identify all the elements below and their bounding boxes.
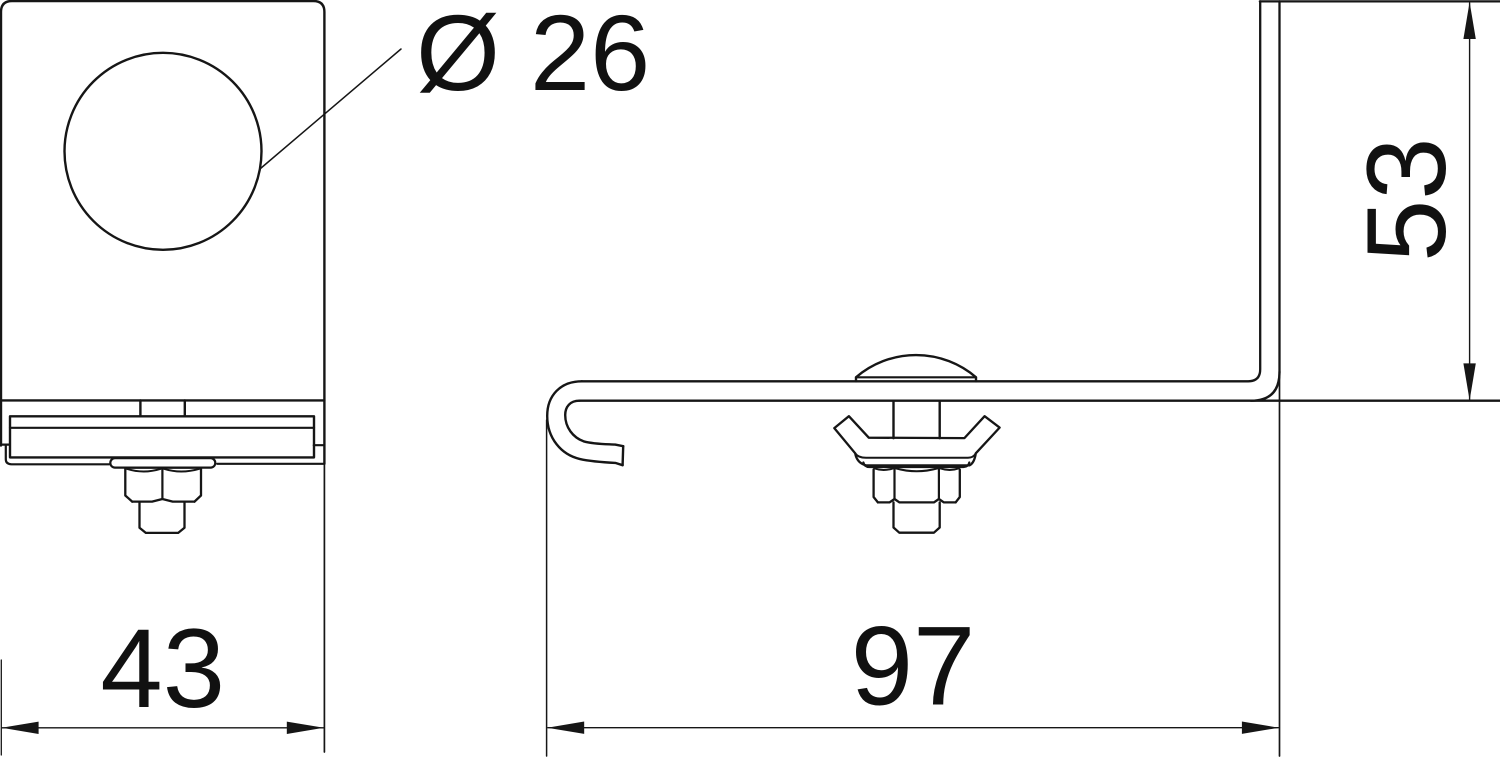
- svg-text:53: 53: [1344, 137, 1469, 262]
- svg-text:43: 43: [100, 606, 225, 731]
- svg-text:Ø 26: Ø 26: [416, 0, 650, 113]
- svg-text:97: 97: [851, 604, 976, 729]
